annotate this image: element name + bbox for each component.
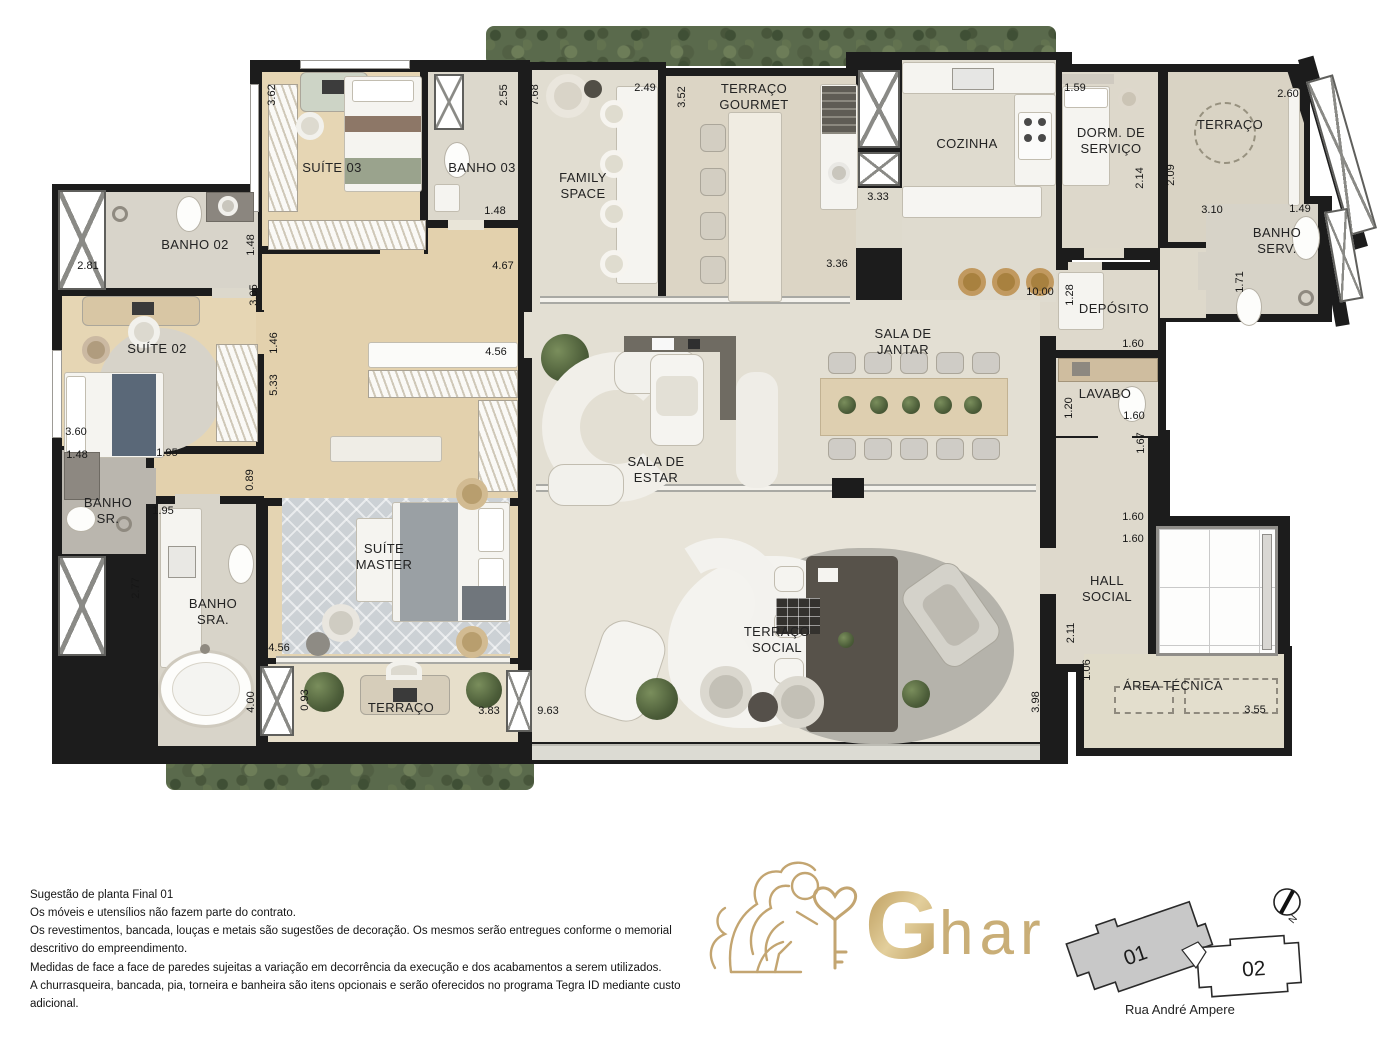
disclaimer-line: Os revestimentos, bancada, louças e meta… bbox=[30, 922, 690, 958]
side-table-icon bbox=[748, 692, 778, 722]
room-label-terraco-tr: TERRAÇO bbox=[1180, 117, 1280, 133]
dimension-label: 1.95 bbox=[152, 505, 173, 517]
brand-logo: G har bbox=[705, 856, 1055, 996]
dimension-label: 2.60 bbox=[1277, 88, 1298, 100]
blanket-icon bbox=[112, 374, 156, 456]
toilet-icon bbox=[228, 544, 254, 584]
window-suite-03-top bbox=[300, 60, 410, 69]
disclaimer-line: Sugestão de planta Final 01 bbox=[30, 886, 690, 904]
dimension-label: 10.00 bbox=[1026, 286, 1054, 298]
dimension-label: 2.11 bbox=[1065, 623, 1077, 644]
pillow-icon bbox=[478, 508, 504, 552]
door-banho-sr bbox=[146, 468, 156, 504]
elevator-rail bbox=[1262, 534, 1272, 650]
dimension-label: 3.83 bbox=[478, 705, 499, 717]
room-label-banho-sr: BANHO SR. bbox=[80, 495, 136, 527]
door-lavabo bbox=[1098, 434, 1132, 444]
pouf-icon bbox=[456, 478, 488, 510]
plant-icon bbox=[870, 396, 888, 414]
dimension-label: 1.60 bbox=[1122, 338, 1143, 350]
dimension-label: 3.52 bbox=[676, 86, 688, 107]
decor-icon bbox=[652, 338, 674, 350]
shaft-x-icon bbox=[858, 152, 900, 186]
dimension-label: 3.98 bbox=[1030, 691, 1042, 712]
room-label-terraco-master: TERRAÇO bbox=[351, 700, 451, 716]
dimension-label: 1.59 bbox=[1064, 82, 1085, 94]
room-label-terraco-gourmet: TERRAÇO GOURMET bbox=[709, 81, 799, 113]
sliding-door-gourmet bbox=[540, 296, 850, 304]
dimension-label: 2.14 bbox=[1134, 167, 1146, 188]
dimension-label: 1.71 bbox=[1234, 271, 1246, 292]
sink-icon bbox=[168, 546, 196, 578]
room-label-banho-sra: BANHO SRA. bbox=[183, 596, 243, 628]
dimension-label: 3.36 bbox=[826, 258, 847, 270]
compass-icon: N bbox=[1274, 889, 1300, 926]
shaft-x-icon bbox=[58, 190, 106, 290]
floor-corridor bbox=[262, 254, 518, 310]
lounge-chair-icon bbox=[546, 74, 590, 118]
street-label: Rua André Ampere bbox=[1125, 1002, 1235, 1017]
door-deposito bbox=[1068, 262, 1102, 272]
dimension-label: 1.67 bbox=[1135, 432, 1147, 453]
window-suite-02 bbox=[52, 350, 62, 438]
room-label-family-space: FAMILY SPACE bbox=[551, 170, 615, 202]
room-label-banho-02: BANHO 02 bbox=[147, 237, 243, 253]
shaft-x-icon bbox=[506, 670, 532, 732]
dimension-label: 3.05 bbox=[248, 284, 260, 305]
tv-console bbox=[720, 336, 736, 420]
sliding-door-social-right bbox=[864, 484, 1036, 492]
stool-icon bbox=[992, 268, 1020, 296]
chair-icon bbox=[386, 660, 422, 680]
bench-corridor bbox=[330, 436, 442, 462]
room-label-hall-social: HALL SOCIAL bbox=[1077, 573, 1137, 605]
pouf-icon bbox=[306, 632, 330, 656]
chair-icon bbox=[700, 124, 726, 152]
laptop-icon bbox=[132, 302, 154, 315]
burner-icon bbox=[1038, 118, 1046, 126]
dimension-label: 3.55 bbox=[1244, 704, 1265, 716]
plant-icon bbox=[964, 396, 982, 414]
vanity-banho-sra bbox=[160, 508, 202, 668]
dimension-label: 3.10 bbox=[1201, 204, 1222, 216]
dimension-label: 1.60 bbox=[1122, 511, 1143, 523]
dimension-label: 0.93 bbox=[299, 689, 311, 710]
room-label-cozinha: COZINHA bbox=[917, 136, 1017, 152]
blanket-icon bbox=[345, 116, 421, 132]
chair-icon bbox=[600, 250, 628, 278]
compass-n-label: N bbox=[1287, 913, 1300, 926]
brand-initial: G bbox=[865, 872, 940, 979]
plant-icon bbox=[902, 396, 920, 414]
sink-icon bbox=[828, 162, 850, 184]
door-banho-sra bbox=[175, 494, 220, 506]
pillow-icon bbox=[352, 80, 414, 102]
door-dorm-servico bbox=[1084, 248, 1124, 258]
key-plan: 01 02 N Rua André Ampere bbox=[1050, 872, 1350, 1024]
stool-icon bbox=[958, 268, 986, 296]
chair-icon bbox=[828, 438, 856, 460]
burner-icon bbox=[1038, 134, 1046, 142]
toilet-icon bbox=[1236, 288, 1262, 326]
door-banho-03 bbox=[448, 220, 484, 230]
disclaimer-line: Medidas de face a face de paredes sujeit… bbox=[30, 959, 690, 977]
room-label-banho-serv: BANHO SERV. bbox=[1245, 225, 1309, 257]
cushion-icon bbox=[656, 376, 698, 416]
throw-icon bbox=[462, 586, 506, 620]
chair-icon bbox=[600, 100, 628, 128]
double-sink-icon bbox=[952, 68, 994, 90]
plant-icon bbox=[934, 396, 952, 414]
room-label-sala-jantar: SALA DE JANTAR bbox=[868, 326, 938, 358]
faucet-icon bbox=[200, 644, 210, 654]
chair-icon bbox=[936, 438, 964, 460]
table-dashed-icon bbox=[1194, 102, 1256, 164]
room-label-banho-03: BANHO 03 bbox=[434, 160, 530, 176]
shaft-x-icon bbox=[858, 70, 900, 148]
room-label-suite-master: SUÍTE MASTER bbox=[349, 541, 419, 573]
dimension-label: 0.89 bbox=[244, 469, 256, 490]
laptop-icon bbox=[322, 80, 346, 94]
unit-02-label: 02 bbox=[1241, 957, 1266, 982]
plant-icon bbox=[838, 632, 854, 648]
bathtub-inner bbox=[172, 662, 240, 716]
chair-icon bbox=[936, 352, 964, 374]
dimension-label: 1.48 bbox=[245, 234, 257, 255]
chair-icon bbox=[774, 566, 804, 592]
dimension-label: 1.60 bbox=[1122, 533, 1143, 545]
grill-icon bbox=[822, 86, 856, 134]
door-banho-serv bbox=[1198, 252, 1208, 290]
pillow-icon bbox=[66, 376, 86, 454]
chair-icon bbox=[972, 352, 1000, 374]
basin-icon bbox=[1072, 362, 1090, 376]
burner-icon bbox=[1024, 134, 1032, 142]
chair-icon bbox=[864, 438, 892, 460]
chair-icon bbox=[600, 200, 628, 228]
dimension-label: 1.49 bbox=[1289, 203, 1310, 215]
room-label-deposito: DEPÓSITO bbox=[1064, 301, 1164, 317]
chair-icon bbox=[700, 256, 726, 284]
closet-corridor bbox=[368, 370, 518, 398]
dimension-label: 1.48 bbox=[484, 205, 505, 217]
dimension-label: 5.33 bbox=[268, 374, 280, 395]
island-kitchen bbox=[902, 186, 1042, 218]
opening-jantar-service bbox=[1040, 302, 1058, 336]
dimension-label: 4.56 bbox=[268, 642, 289, 654]
toilet-icon bbox=[176, 196, 202, 232]
chair-icon bbox=[900, 438, 928, 460]
pouf-icon bbox=[584, 80, 602, 98]
room-label-suite-03: SUÍTE 03 bbox=[277, 160, 387, 176]
dimension-label: 1.95 bbox=[156, 447, 177, 459]
sink-icon bbox=[434, 184, 460, 212]
round-chair-icon bbox=[700, 666, 752, 718]
chair-icon bbox=[700, 212, 726, 240]
floor-plan-canvas: SUÍTE 03 BANHO 03 BANHO 02 SUÍTE 02 FAMI… bbox=[0, 0, 1400, 1038]
dimension-label: 4.00 bbox=[245, 691, 257, 712]
dimension-label: 3.60 bbox=[65, 426, 86, 438]
wardrobe-suite-03 bbox=[268, 220, 426, 250]
shower-head-icon bbox=[1298, 290, 1314, 306]
disclaimer-block: Sugestão de planta Final 01 Os móveis e … bbox=[30, 886, 690, 1013]
dimension-label: 2.09 bbox=[1165, 164, 1177, 185]
elevator-icon bbox=[1156, 526, 1278, 656]
shower-head-icon bbox=[112, 206, 128, 222]
closet-corridor bbox=[478, 400, 518, 492]
dimension-label: 3.62 bbox=[266, 84, 278, 105]
plant-icon bbox=[902, 680, 930, 708]
room-label-sala-estar: SALA DE ESTAR bbox=[624, 454, 688, 486]
door-corridor-living bbox=[524, 312, 534, 358]
bench-icon bbox=[1288, 88, 1300, 206]
wall-segment bbox=[832, 478, 864, 498]
chair-icon bbox=[700, 168, 726, 196]
room-label-suite-02: SUÍTE 02 bbox=[102, 341, 212, 357]
dimension-label: 7.68 bbox=[529, 84, 541, 105]
disclaimer-line: Os móveis e utensílios não fazem parte d… bbox=[30, 904, 690, 922]
walkway-strip bbox=[532, 744, 1040, 760]
dimension-label: 1.48 bbox=[66, 449, 87, 461]
dimension-label: 1.60 bbox=[1123, 410, 1144, 422]
decor-icon bbox=[818, 568, 838, 582]
dimension-label: 1.28 bbox=[1064, 284, 1076, 305]
chair-suite-03 bbox=[296, 112, 324, 140]
sofa-seat bbox=[548, 464, 624, 506]
dimension-label: 3.33 bbox=[867, 191, 888, 203]
chair-icon bbox=[972, 438, 1000, 460]
round-chair-icon bbox=[772, 676, 824, 728]
dimension-label: 1.20 bbox=[1063, 397, 1075, 418]
burner-icon bbox=[1024, 118, 1032, 126]
table-gourmet bbox=[728, 112, 782, 302]
stove-icon bbox=[1018, 112, 1052, 160]
plant-icon bbox=[636, 678, 678, 720]
brand-rest: har bbox=[939, 899, 1047, 968]
room-label-terraco-social: TERRAÇO SOCIAL bbox=[732, 624, 822, 656]
plant-icon bbox=[838, 396, 856, 414]
door-hall-entry bbox=[1040, 548, 1058, 594]
rug-estar bbox=[736, 372, 778, 488]
dimension-label: 4.67 bbox=[492, 260, 513, 272]
door-banho-02 bbox=[212, 288, 252, 298]
room-label-area-tecnica: ÁREA TÉCNICA bbox=[1103, 678, 1243, 694]
shaft-x-icon bbox=[260, 666, 294, 736]
dimension-label: 2.55 bbox=[498, 84, 510, 105]
dimension-label: 2.77 bbox=[130, 577, 142, 598]
shower-icon bbox=[434, 74, 464, 130]
dimension-label: 9.63 bbox=[537, 705, 558, 717]
closet-suite-02 bbox=[216, 344, 258, 442]
dimension-label: 2.81 bbox=[77, 260, 98, 272]
dimension-label: 1.46 bbox=[268, 332, 280, 353]
heart-key-icon bbox=[814, 888, 855, 968]
disclaimer-line: A churrasqueira, bancada, pia, torneira … bbox=[30, 977, 690, 1013]
pouf-icon bbox=[456, 626, 488, 658]
dimension-label: 2.49 bbox=[634, 82, 655, 94]
dimension-label: 1.06 bbox=[1081, 659, 1093, 680]
lion-icon bbox=[711, 863, 818, 972]
shaft-x-icon bbox=[58, 556, 106, 656]
chair-icon bbox=[828, 352, 856, 374]
side-table-icon bbox=[1118, 88, 1140, 110]
decor-icon bbox=[688, 339, 700, 349]
sink-icon bbox=[218, 196, 238, 216]
dimension-label: 4.56 bbox=[485, 346, 506, 358]
plant-icon bbox=[466, 672, 502, 708]
room-label-dorm-servico: DORM. DE SERVIÇO bbox=[1071, 125, 1151, 157]
